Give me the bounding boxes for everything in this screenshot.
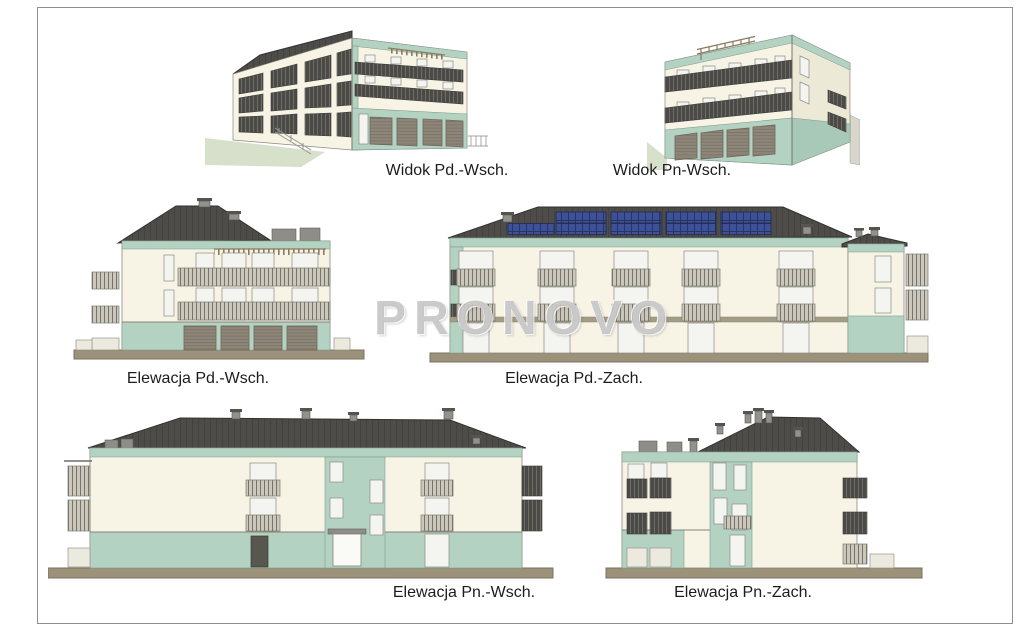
right-fence [870,554,894,568]
right-fence [334,338,350,350]
roof [88,418,526,448]
view-widok-pn-wsch [645,20,860,170]
elevation-drawing-north-west [598,408,930,585]
roof [118,206,270,243]
caption-elewacja-pd-wsch: Elewacja Pd.-Wsch. [108,370,288,388]
perspective-drawing-north-east [645,20,860,170]
side-ramp [850,115,860,165]
view-widok-pd-wsch [205,22,510,167]
ground-line [430,353,928,362]
balcony-railing-upper [178,268,330,286]
perspective-drawing-south-east [205,22,510,167]
stair-window [359,114,368,144]
watermark: PRONOVO [374,291,675,346]
view-elewacja-pn-zach [598,408,930,585]
drawing-sheet: Widok Pd.-Wsch. Widok Pn-Wsch. Elewacja … [0,0,1024,636]
stair-core [325,457,385,568]
stair-core [710,462,752,568]
side-balconies-left [64,461,92,567]
window-stack-right [421,463,453,567]
ground-line [74,350,364,359]
end-balcony [906,254,928,286]
balcony-railing-lower [178,302,330,320]
end-balcony [906,290,928,320]
roof [698,417,859,452]
rooftop-units [639,441,682,452]
caption-widok-pn-wsch: Widok Pn-Wsch. [582,162,762,180]
entrance-door [333,534,361,566]
left-fence [76,340,92,350]
service-door [251,536,268,567]
right-facade [792,35,850,165]
caption-widok-pd-wsch: Widok Pd.-Wsch. [357,162,537,180]
mint-top-band [450,238,848,247]
entrance-canopy [328,529,366,534]
mint-top-band [90,448,522,457]
view-elewacja-pd-wsch [72,198,392,365]
side-balconies [92,272,119,350]
balcony-stack-right [843,478,867,564]
front-facade [665,35,792,165]
ground-line [606,568,922,578]
elevation-drawing-south-east [72,198,392,365]
rooftop-units [272,228,320,241]
mint-top-band [622,452,857,462]
right-wing [842,227,928,353]
mint-top-band [122,241,330,249]
caption-elewacja-pd-zach: Elewacja Pd.-Zach. [484,370,664,388]
side-fence [468,136,488,146]
caption-elewacja-pn-zach: Elewacja Pn.-Zach. [653,584,833,602]
garage-doors [370,117,463,147]
ground-floor-mint [90,532,522,568]
right-facade [352,38,488,150]
caption-elewacja-pn-wsch: Elewacja Pn.-Wsch. [374,584,554,602]
view-elewacja-pn-wsch [48,408,555,585]
elevation-drawing-north-east [48,408,555,585]
ground-line [48,568,553,578]
side-balconies-right [522,466,542,531]
